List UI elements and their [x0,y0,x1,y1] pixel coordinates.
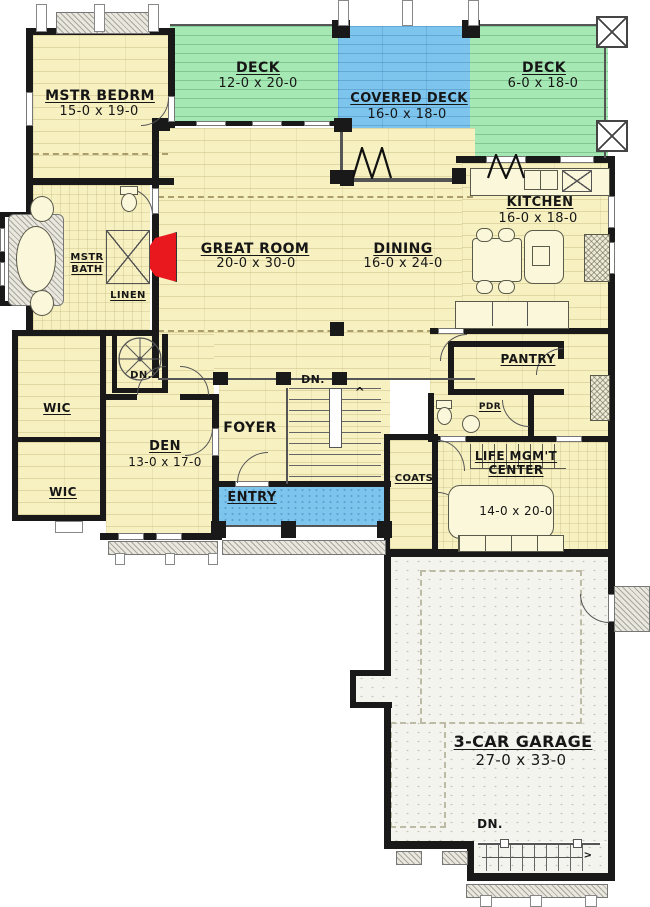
column-post [452,168,466,184]
kitchen-lower-counter [455,301,569,329]
window [0,262,5,286]
beam-dashed-line [158,196,473,198]
roof-post [36,4,47,32]
sink [30,196,54,222]
annotation-dn-stairs: DN. [301,374,325,387]
chair [498,280,515,294]
refrigerator [584,234,610,282]
toilet-bowl [437,407,452,425]
room-label-linen: LINEN [110,290,146,302]
room-label-pantry: PANTRY [501,353,556,367]
window [608,196,615,228]
room-label-foyer: FOYER [223,420,276,436]
room-dims-life-mgmt: 14-0 x 20-0 [479,505,553,519]
room-label-mstr-bath: MSTR BATH [66,252,108,275]
room-label-life-mgmt-2: CENTER [488,464,543,478]
garage-bay-dashed [390,722,446,828]
garage-step-floor [356,674,392,702]
wall [212,394,219,540]
chair [498,228,515,242]
column-post [332,372,347,385]
wic-lower-floor [18,442,102,515]
roof-post [338,0,349,26]
folding-door-icon [352,147,392,179]
room-label-mstr-bedrm: MSTR BEDRM [45,88,155,104]
up-arrow-icon: ^ [355,386,365,400]
bathtub [16,226,56,292]
entry-steps [222,540,386,555]
chair [476,280,493,294]
room-dims-deck-right: 6-0 x 18-0 [508,77,579,92]
wall [0,212,5,306]
room-label-great-room: GREAT ROOM [201,241,310,257]
sink [30,290,54,316]
column-post [213,372,228,385]
chair [476,228,493,242]
room-dims-den: 13-0 x 17-0 [128,456,202,470]
counter-divider [527,302,528,326]
column-post [330,322,344,336]
window [26,92,33,126]
toilet-bowl [121,193,137,212]
room-label-garage: 3-CAR GARAGE [454,733,593,751]
window [156,533,182,540]
porch-foot [115,553,125,565]
door-opening [212,428,219,456]
room-label-dining: DINING [373,241,432,257]
room-label-pdr: PDR [479,402,501,412]
porch-foot [208,553,218,565]
beam-dashed-line [158,330,473,332]
porch-foot [585,895,597,907]
room-dims-great-room: 20-0 x 30-0 [216,257,295,272]
porch-post [281,521,296,538]
wall [467,873,615,881]
room-label-entry: ENTRY [227,491,276,506]
wall [15,437,103,442]
porch-post [377,521,392,538]
room-dims-mstr-bedrm: 15-0 x 19-0 [59,105,138,120]
door-opening [152,188,159,214]
room-label-den: DEN [149,440,181,455]
shower [106,230,150,284]
utility-cabinet [590,375,610,421]
room-dims-kitchen: 16-0 x 18-0 [498,212,577,227]
window [196,121,226,126]
window [252,121,282,126]
wall [12,330,18,521]
room-label-coats: COATS [395,473,434,485]
roof-post [402,0,413,26]
wall [384,549,391,676]
door-opening [556,436,582,442]
side-stoop [614,586,650,632]
room-label-life-mgmt-1: LIFE MGM'T [475,450,557,464]
garage-bay-dashed [420,570,582,724]
porch-post [211,521,226,538]
stair-rail-line [482,857,582,858]
pilaster [396,851,422,865]
roof-post [468,0,479,26]
room-dims-covered-deck: 16-0 x 18-0 [367,108,446,123]
kitchen-sink [540,170,558,190]
wall [448,389,564,395]
room-label-wic-lower: WIC [49,486,77,500]
newel-post [500,839,509,848]
life-mgmt-cabinets [458,535,564,552]
porch-foot [480,895,492,907]
counter-divider [492,302,493,326]
range [562,170,592,192]
wall [100,332,106,521]
wall [384,434,438,440]
pilaster [442,851,468,865]
roof-post [148,4,159,32]
wall [384,841,474,849]
coats-floor [390,440,432,550]
newel-post [573,839,582,848]
stair-rail [329,388,342,448]
porch-edge [215,525,389,527]
column-post [330,170,344,184]
window [0,228,5,252]
annotation-dn-spiral: DN. [130,370,152,382]
room-label-covered-deck: COVERED DECK [350,92,467,107]
deck-edge [470,24,608,26]
deck-post-x-icon [596,16,628,48]
door-opening [168,96,175,122]
room-dims-deck-left: 12-0 x 20-0 [218,77,297,92]
window [560,156,594,163]
beam-dashed-line [33,153,168,155]
column-post [334,118,352,132]
deck-post-x-icon [596,120,628,152]
room-label-deck-left: DECK [236,60,280,76]
deck-edge [170,24,340,26]
window-well [55,521,83,533]
room-dims-garage: 27-0 x 33-0 [476,752,567,769]
porch-foot [165,553,175,565]
stair-rail-line [286,388,288,484]
floor-plan: MSTR BEDRM 15-0 x 19-0 DECK 12-0 x 20-0 … [0,0,650,907]
kitchen-table [472,238,522,282]
roof-post [94,4,105,32]
right-arrow-icon: > [584,850,593,862]
wall [103,394,137,400]
window [118,533,144,540]
window [304,121,330,126]
room-label-wic-upper: WIC [43,402,71,416]
sink [462,415,480,433]
wall [428,393,434,440]
room-label-kitchen: KITCHEN [507,196,574,211]
wall [384,702,391,848]
room-dims-dining: 16-0 x 24-0 [363,257,442,272]
column-post [276,372,291,385]
annotation-dn-garage: DN. [477,818,503,832]
porch-foot [530,895,542,907]
room-label-deck-right: DECK [522,60,566,76]
folding-door-icon [487,154,525,179]
wic-upper-floor [18,336,102,437]
glass-wall [340,132,343,172]
island-sink [532,246,550,266]
wall [352,670,390,676]
deck-right-floor [470,26,608,158]
garage-stair-treads [486,845,594,871]
